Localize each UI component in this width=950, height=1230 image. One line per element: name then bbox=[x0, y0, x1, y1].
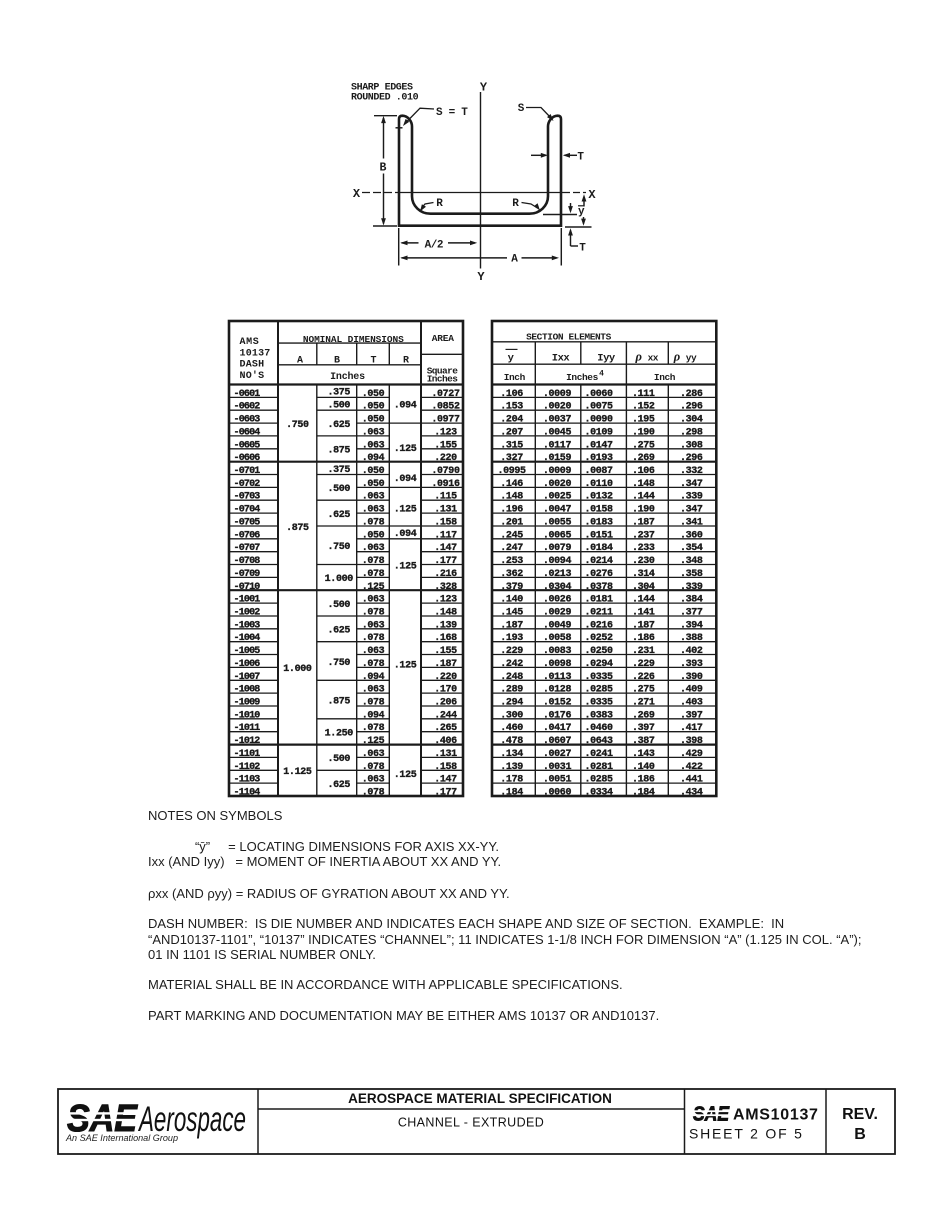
svg-text:An SAE International Group: An SAE International Group bbox=[65, 1133, 178, 1143]
svg-text:AMS10137: AMS10137 bbox=[733, 1107, 819, 1124]
svg-text:AEROSPACE MATERIAL SPECIFICATI: AEROSPACE MATERIAL SPECIFICATION bbox=[348, 1091, 612, 1106]
svg-text:REV.: REV. bbox=[842, 1106, 878, 1123]
svg-text:SHEET 2 OF 5: SHEET 2 OF 5 bbox=[689, 1126, 804, 1142]
svg-text:B: B bbox=[854, 1126, 866, 1143]
svg-text:CHANNEL - EXTRUDED: CHANNEL - EXTRUDED bbox=[398, 1116, 544, 1130]
